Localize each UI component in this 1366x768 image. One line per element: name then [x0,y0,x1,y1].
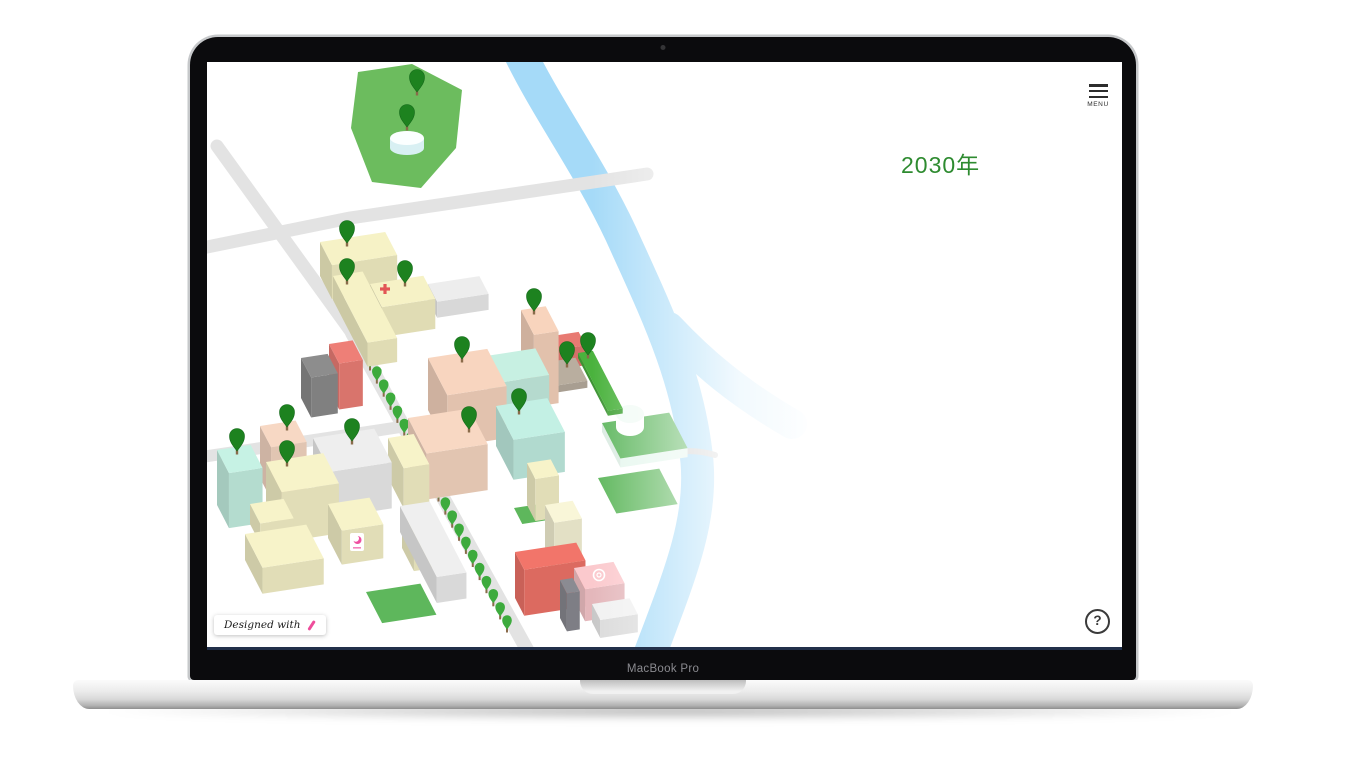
building-face [311,373,338,417]
park-pond [390,131,424,155]
badge-text: Designed with [224,619,300,631]
laptop-base [73,680,1253,709]
help-button[interactable]: ? [1085,609,1110,634]
question-icon: ? [1093,613,1101,628]
screen-bottom-edge [207,647,1122,650]
hamburger-icon [1085,84,1111,98]
device-label: MacBook Pro [190,663,1136,675]
year-label: 2030年 [901,146,980,180]
menu-label: MENU [1085,101,1111,108]
green-field [366,584,436,623]
pen-icon [308,620,316,631]
building-face [368,338,398,367]
building-gray-office [301,354,338,418]
isometric-city-map [207,62,1122,650]
building-face [437,572,467,603]
decal-crescent [350,533,364,551]
map-fade-overlay [572,62,1122,650]
webcam-icon [661,45,666,50]
screen: MENU 2030年 ? Designed with [207,62,1122,650]
laptop-lid: MENU 2030年 ? Designed with MacBook Pro [190,37,1136,680]
building-depot [428,276,489,318]
designed-with-badge[interactable]: Designed with [214,615,326,635]
lid-notch [580,680,746,694]
building-face [426,444,487,499]
building-face [339,360,363,410]
building-face [404,464,430,508]
menu-button[interactable]: MENU [1085,84,1111,108]
